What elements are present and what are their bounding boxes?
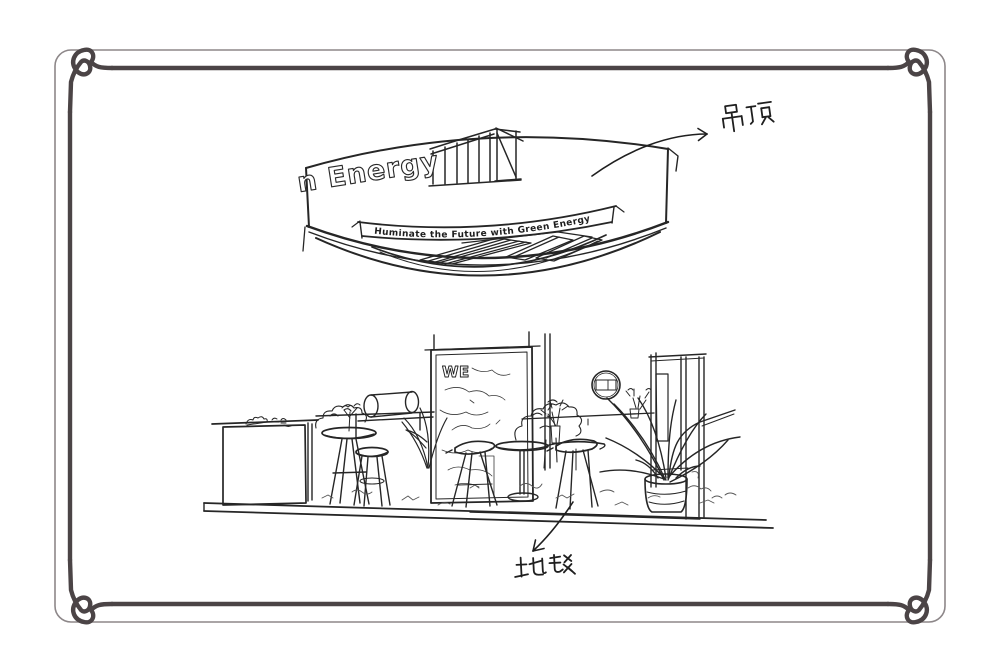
we-sign: WE bbox=[442, 363, 470, 381]
brand-text: n Energy bbox=[295, 146, 441, 199]
carpet-annotation-arrow-icon bbox=[533, 502, 573, 551]
corner-loop-ornament-icon bbox=[70, 560, 112, 622]
corner-loop-ornament-icon bbox=[888, 560, 930, 622]
frame-inner-border bbox=[70, 68, 930, 604]
sketch-canvas: n Energy Huminate the Future with Green … bbox=[0, 0, 1000, 670]
shrub-left bbox=[316, 405, 367, 428]
floor-edge bbox=[204, 503, 773, 528]
bar-table bbox=[322, 404, 376, 504]
frame-outer-border bbox=[55, 50, 945, 622]
corner-loop-ornament-icon bbox=[888, 50, 930, 112]
carpet-annotation-text bbox=[514, 554, 575, 577]
decorative-frame bbox=[55, 50, 945, 623]
wall-mirror bbox=[592, 371, 620, 399]
booth-scene: WE bbox=[204, 332, 773, 528]
panel-map-art bbox=[440, 368, 510, 497]
ceiling-ring: n Energy Huminate the Future with Green … bbox=[295, 128, 678, 276]
reception-counter bbox=[212, 417, 318, 505]
plant-leaves bbox=[600, 398, 740, 482]
ceiling-annotation-text bbox=[721, 100, 774, 133]
backdrop-panel: WE bbox=[425, 332, 540, 503]
corner-loop-ornament-icon bbox=[70, 50, 112, 112]
ceiling-annotation-arrow-icon bbox=[592, 129, 707, 177]
pedestal-table bbox=[496, 442, 548, 502]
stool-leaf-right bbox=[547, 439, 598, 509]
booth-sketch: n Energy Huminate the Future with Green … bbox=[0, 0, 1000, 670]
